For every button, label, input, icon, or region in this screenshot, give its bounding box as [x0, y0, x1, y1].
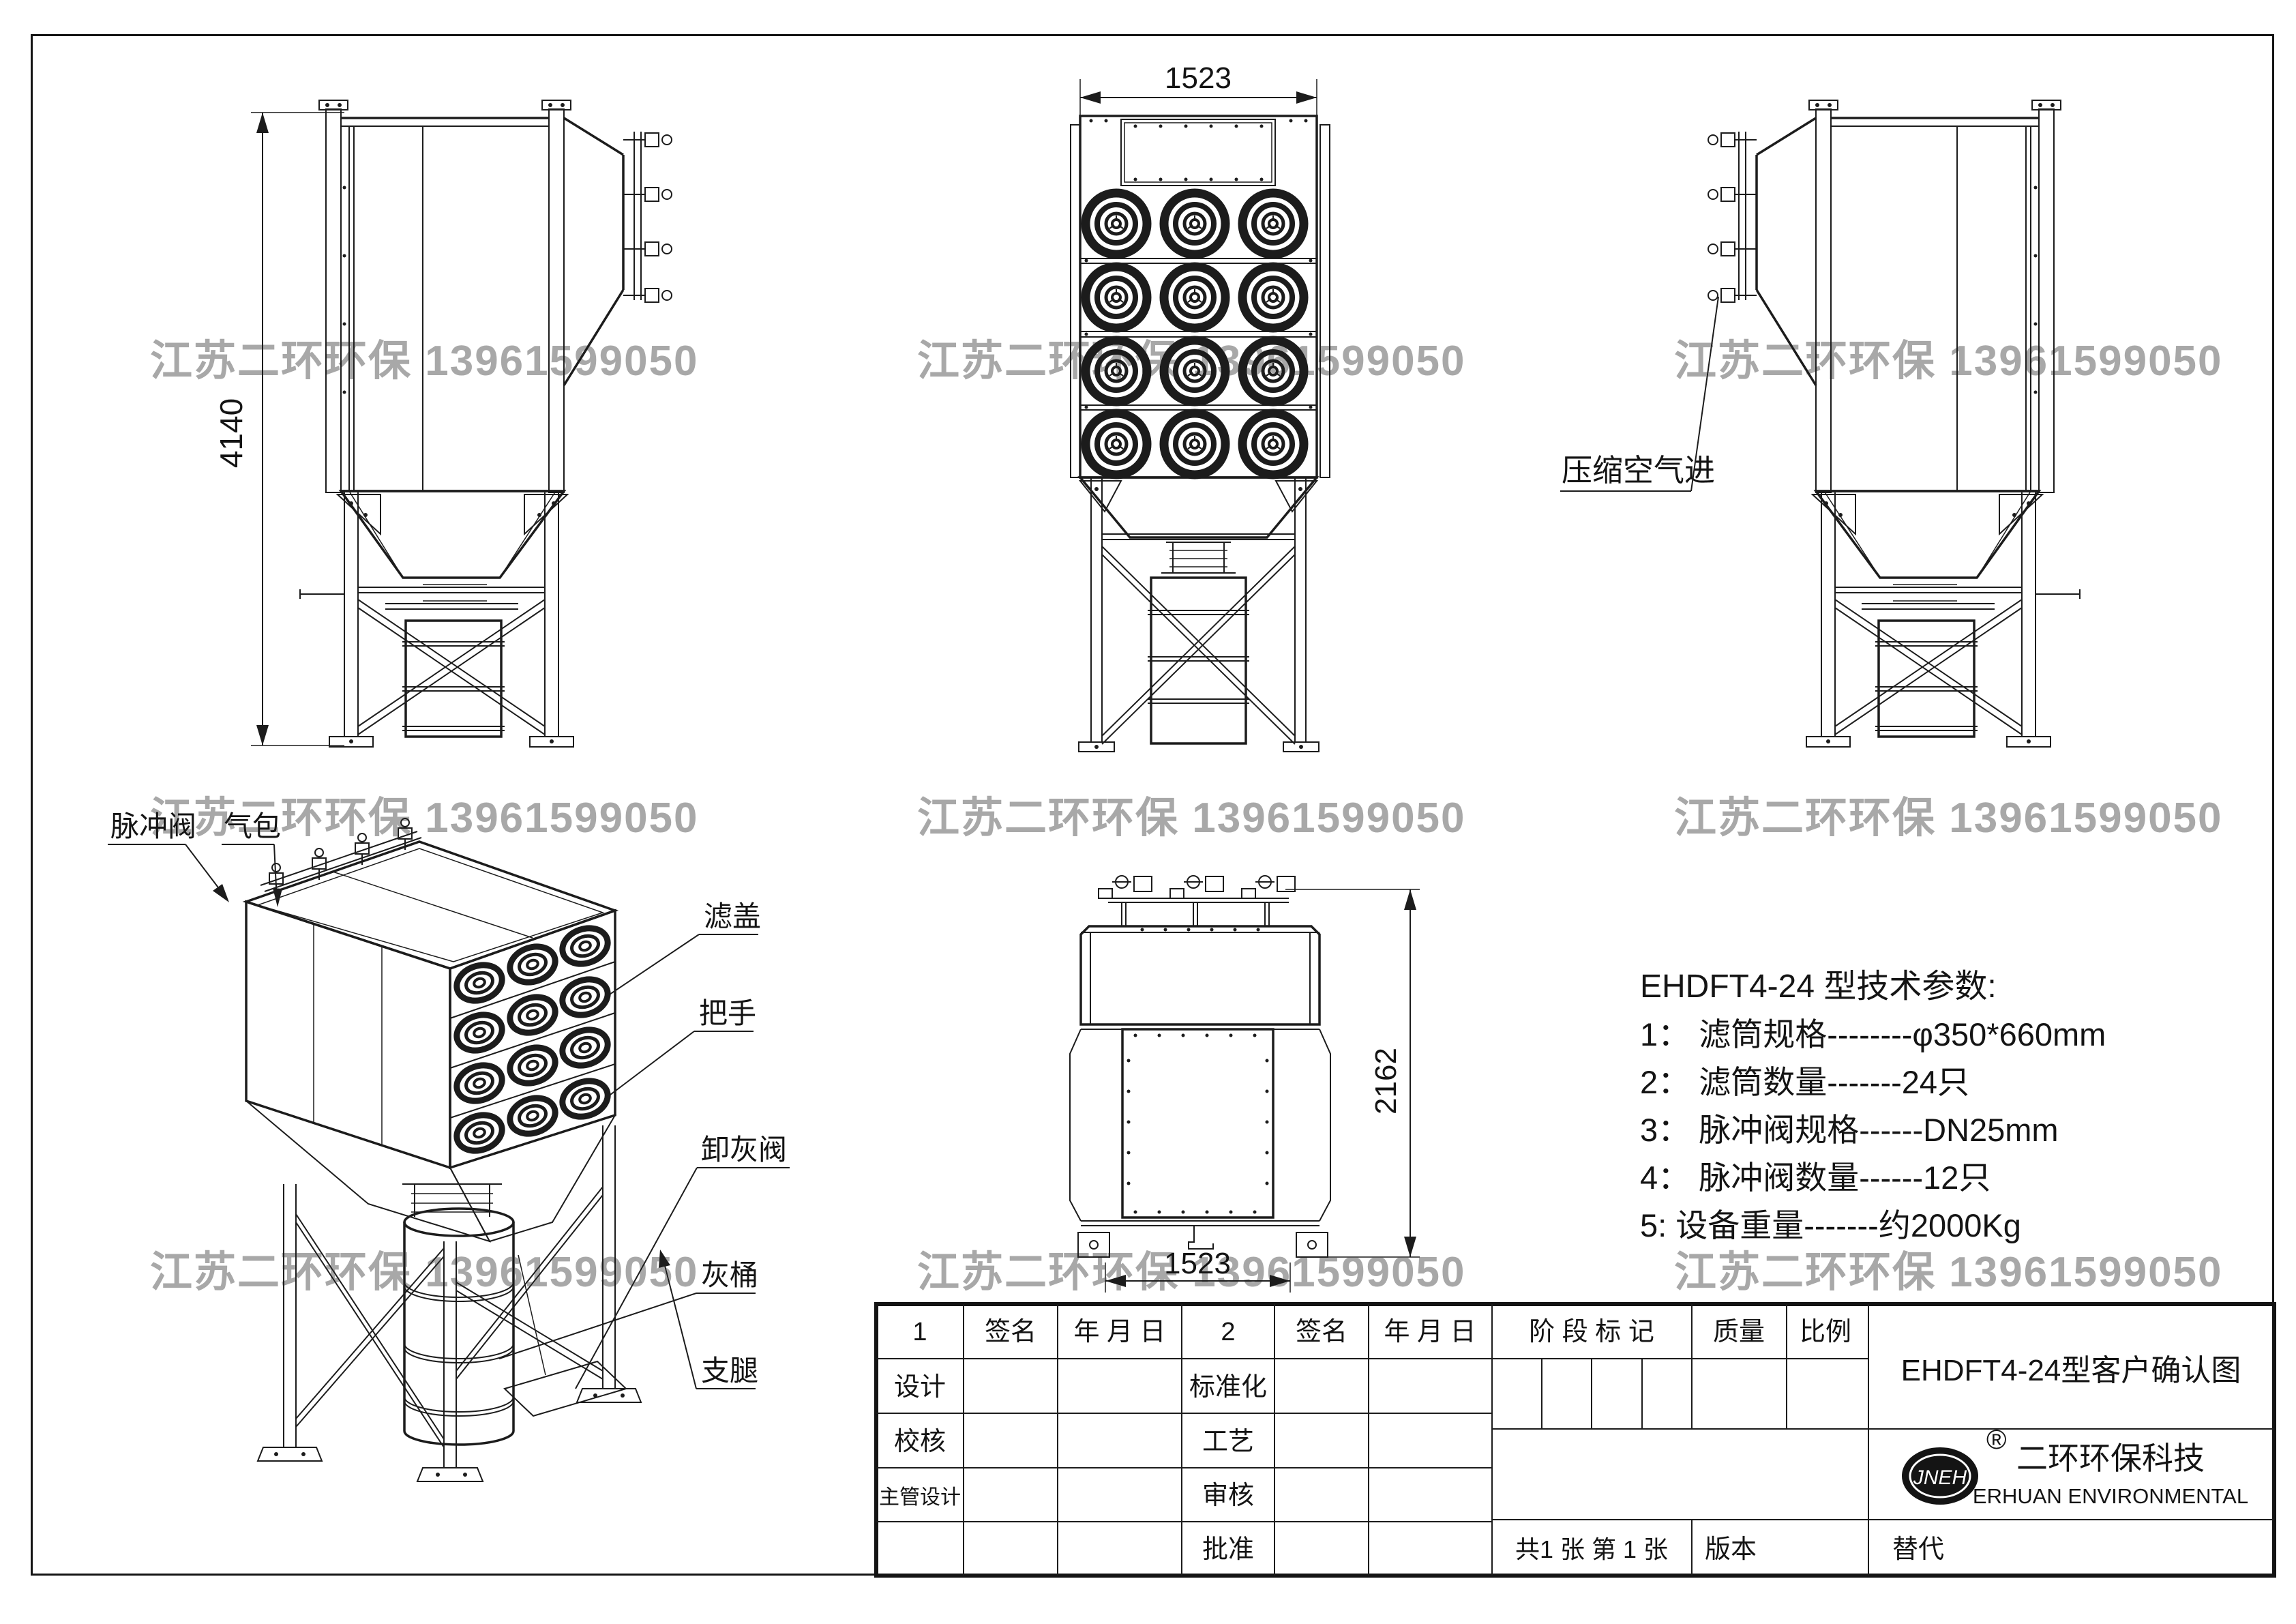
iso-cartridges	[452, 922, 613, 1156]
top-view: 2162 1523	[1060, 856, 1442, 1299]
tb-design: 设计	[894, 1373, 946, 1402]
watermark: 江苏二环环保 13961599050	[150, 783, 699, 844]
support-legs	[258, 1125, 641, 1481]
dim-height-label: 4140	[213, 398, 249, 468]
tb-replace: 替代	[1892, 1535, 1944, 1564]
tech-item-2: 2： 滤筒数量-------24只	[1640, 1059, 2138, 1106]
front-view: 1523	[1064, 65, 1337, 767]
access-door	[1121, 119, 1275, 186]
registered-icon: ®	[1986, 1425, 2006, 1455]
tb-scale: 比例	[1800, 1318, 1851, 1346]
iso-callouts: 脉冲阀 气包 滤盖 把手 卸灰阀 灰桶 支腿	[108, 810, 790, 1389]
tb-standard: 标准化	[1189, 1373, 1267, 1402]
tb-sheets: 共1 张 第 1 张	[1515, 1535, 1668, 1563]
iso-view: 脉冲阀 气包 滤盖 把手 卸灰阀 灰桶 支腿	[82, 805, 805, 1596]
company-name-cn: 二环环保科技	[2016, 1441, 2205, 1476]
tech-title: EHDFT4-24 型技术参数:	[1640, 963, 2138, 1011]
dim-width-label: 1523	[1165, 61, 1232, 95]
watermark: 江苏二环环保 13961599050	[150, 326, 699, 387]
tb-doc-title: EHDFT4-24型客户确认图	[1901, 1354, 2241, 1387]
dim-top-height-label: 2162	[1369, 1048, 1403, 1114]
company-name-en: ERHUAN ENVIRONMENTAL	[1973, 1484, 2248, 1508]
ash-valve-label: 卸灰阀	[701, 1134, 787, 1166]
tb-approve: 批准	[1202, 1535, 1254, 1564]
tb-col1-header: 1	[912, 1318, 927, 1346]
tb-chief-design: 主管设计	[879, 1486, 961, 1509]
filter-cover-label: 滤盖	[704, 900, 761, 932]
ash-bucket-label: 灰桶	[701, 1259, 758, 1291]
top-panel-bolts	[1127, 1034, 1269, 1214]
watermark: 江苏二环环保 13961599050	[150, 1237, 699, 1299]
watermark: 江苏二环环保 13961599050	[917, 1237, 1466, 1299]
tb-craft: 工艺	[1202, 1428, 1254, 1456]
tb-date-header: 年 月 日	[1073, 1318, 1165, 1346]
tb-mass: 质量	[1713, 1318, 1765, 1346]
logo-text: JNEH	[1913, 1466, 1967, 1489]
top-panel	[1122, 1029, 1273, 1217]
tb-review: 审核	[1202, 1481, 1254, 1510]
tb-col2-header: 2	[1221, 1318, 1235, 1346]
watermark: 江苏二环环保 13961599050	[1674, 783, 2223, 844]
tb-version: 版本	[1705, 1535, 1757, 1564]
leg-label: 支腿	[701, 1355, 758, 1387]
tb-date-header-2: 年 月 日	[1384, 1318, 1476, 1346]
side-view-left: 4140	[205, 92, 692, 774]
watermark: 江苏二环环保 13961599050	[1674, 1237, 2223, 1299]
handle-label: 把手	[699, 997, 756, 1029]
watermark: 江苏二环环保 13961599050	[917, 326, 1466, 387]
tb-check: 校核	[894, 1428, 946, 1456]
watermark: 江苏二环环保 13961599050	[1674, 326, 2223, 387]
tb-sign-header: 签名	[985, 1318, 1037, 1346]
watermark: 江苏二环环保 13961599050	[917, 783, 1466, 844]
tb-stage-mark: 阶 段 标 记	[1529, 1318, 1654, 1346]
side-view-right: 压缩空气进	[1548, 92, 2175, 774]
title-block: 1 签名 年 月 日 2 签名 年 月 日 设计 标准化 校核 工艺 主管设计 …	[876, 1304, 2274, 1576]
drawing-sheet: 4140 1523	[0, 0, 2296, 1624]
tb-sign-header-2: 签名	[1296, 1318, 1347, 1346]
tech-item-4: 4： 脉冲阀数量------12只	[1640, 1154, 2138, 1202]
top-valves	[1099, 876, 1295, 926]
tech-params: EHDFT4-24 型技术参数: 1： 滤筒规格--------φ350*660…	[1640, 963, 2138, 1250]
tech-item-3: 3： 脉冲阀规格------DN25mm	[1640, 1106, 2138, 1154]
tech-item-1: 1： 滤筒规格--------φ350*660mm	[1640, 1011, 2138, 1059]
